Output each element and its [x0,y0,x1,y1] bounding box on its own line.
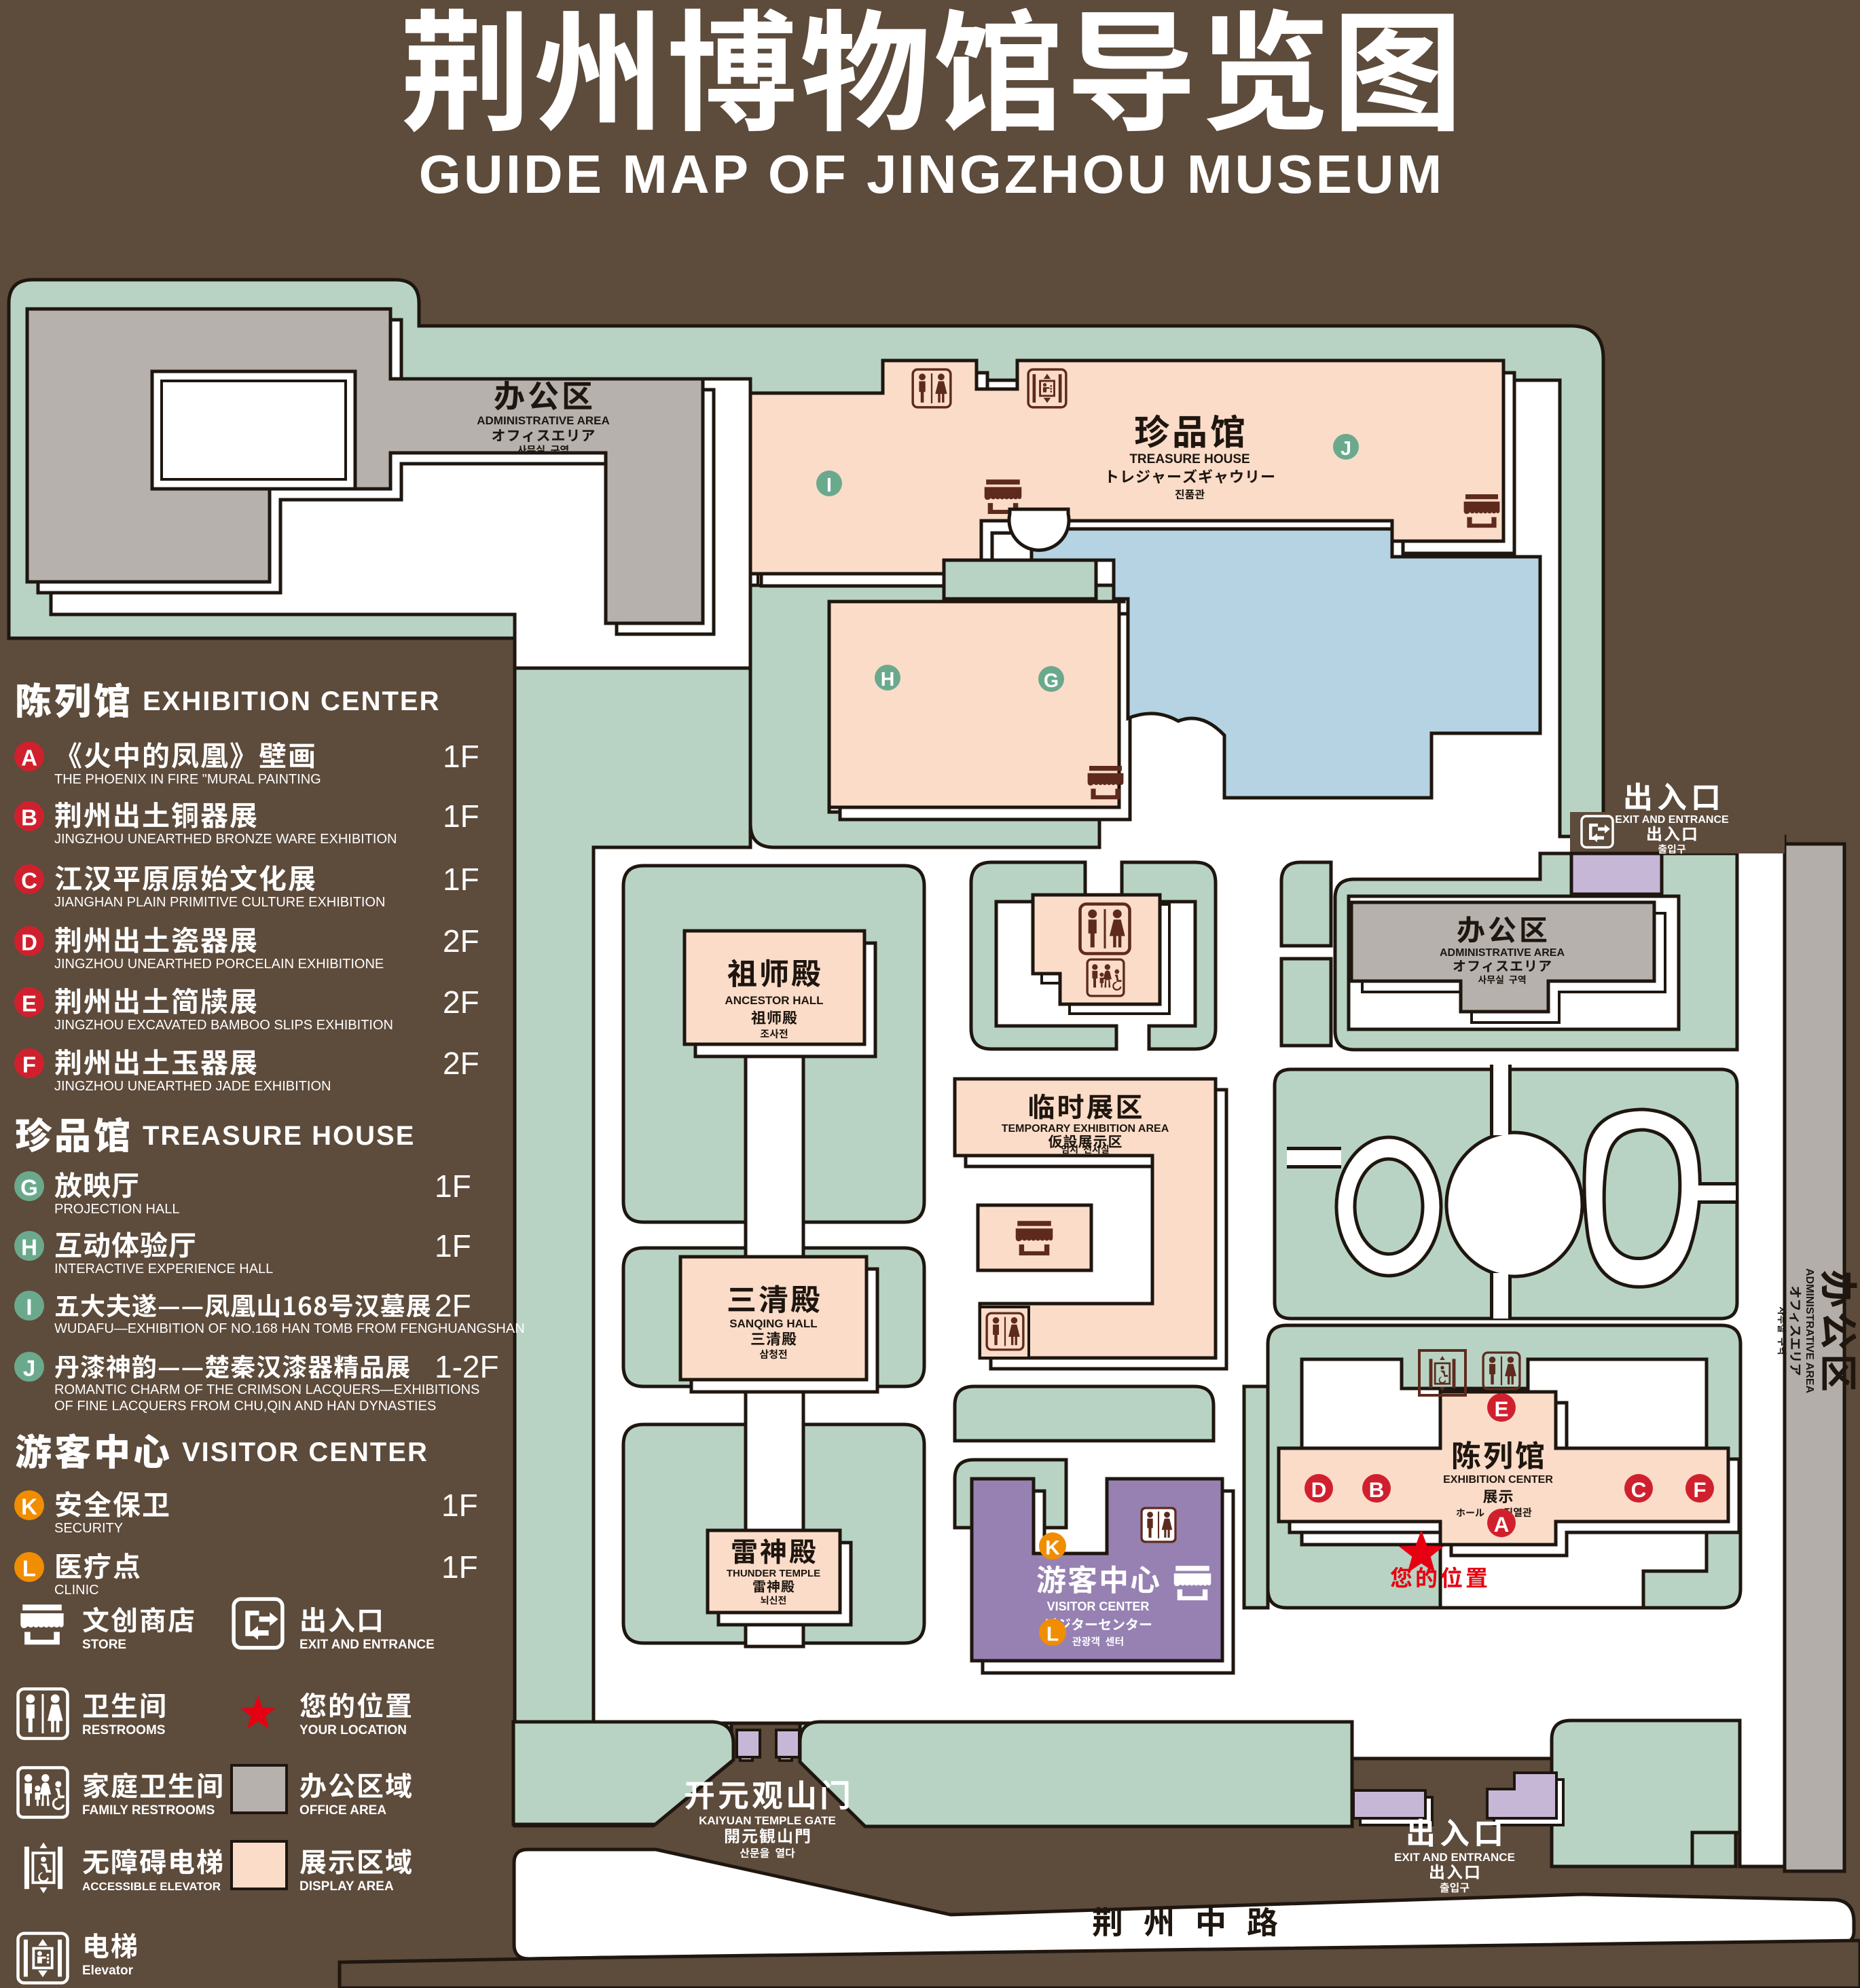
svg-text:C: C [21,868,37,894]
svg-text:Elevator: Elevator [82,1964,134,1978]
svg-text:OFFICE AREA: OFFICE AREA [299,1803,386,1818]
svg-text:YOUR LOCATION: YOUR LOCATION [299,1723,407,1737]
svg-text:JIANGHAN PLAIN PRIMITIVE CULTU: JIANGHAN PLAIN PRIMITIVE CULTURE EXHIBIT… [54,895,385,910]
svg-text:2F: 2F [443,984,479,1020]
svg-text:1F: 1F [441,1549,478,1585]
svg-text:H: H [881,669,895,691]
svg-text:SECURITY: SECURITY [54,1521,123,1536]
svg-text:EXHIBITION CENTER: EXHIBITION CENTER [1443,1474,1553,1486]
svg-text:SANQING HALL: SANQING HALL [729,1317,817,1330]
svg-text:KAIYUAN TEMPLE GATE: KAIYUAN TEMPLE GATE [699,1814,836,1827]
svg-text:EXIT AND ENTRANCE: EXIT AND ENTRANCE [1615,814,1729,826]
svg-text:ADMINISTRATIVE AREA: ADMINISTRATIVE AREA [1804,1268,1815,1393]
svg-text:RESTROOMS: RESTROOMS [82,1723,165,1737]
svg-text:L: L [22,1556,36,1581]
svg-text:I: I [26,1295,32,1320]
svg-text:THUNDER TEMPLE: THUNDER TEMPLE [727,1568,820,1579]
svg-text:J: J [23,1356,35,1381]
svg-text:ROMANTIC CHARM OF THE CRIMSON: ROMANTIC CHARM OF THE CRIMSON LACQUERS—E… [54,1382,479,1397]
svg-text:EXIT AND ENTRANCE: EXIT AND ENTRANCE [299,1638,435,1652]
svg-text:PROJECTION HALL: PROJECTION HALL [54,1202,179,1217]
svg-text:TREASURE HOUSE: TREASURE HOUSE [143,1121,415,1151]
svg-text:JINGZHOU UNEARTHED JADE EXHIBI: JINGZHOU UNEARTHED JADE EXHIBITION [54,1079,331,1094]
svg-text:ADMINISTRATIVE AREA: ADMINISTRATIVE AREA [1440,947,1565,959]
svg-text:A: A [1494,1512,1510,1536]
svg-text:EXHIBITION CENTER: EXHIBITION CENTER [143,686,440,716]
svg-text:F: F [22,1052,36,1078]
svg-text:B: B [1369,1477,1385,1502]
svg-text:G: G [1044,670,1059,692]
svg-text:B: B [21,805,37,830]
svg-text:1F: 1F [443,862,479,897]
svg-text:JINGZHOU EXCAVATED BAMBOO SLIP: JINGZHOU EXCAVATED BAMBOO SLIPS EXHIBITI… [54,1018,393,1033]
svg-text:FAMILY RESTROOMS: FAMILY RESTROOMS [82,1803,215,1818]
svg-text:JINGZHOU UNEARTHED BRONZE WARE: JINGZHOU UNEARTHED BRONZE WARE EXHIBITIO… [54,832,397,847]
svg-text:A: A [21,745,37,771]
svg-text:2F: 2F [435,1288,471,1323]
svg-text:2F: 2F [443,923,479,959]
svg-text:WUDAFU—EXHIBITION OF NO.168 HA: WUDAFU—EXHIBITION OF NO.168 HAN TOMB FRO… [54,1321,525,1336]
svg-text:1F: 1F [443,798,479,834]
svg-text:ANCESTOR HALL: ANCESTOR HALL [725,994,823,1007]
svg-text:2F: 2F [443,1046,479,1081]
svg-text:OF FINE LACQUERS FROM CHU,QIN: OF FINE LACQUERS FROM CHU,QIN AND HAN DY… [54,1399,436,1414]
svg-text:THE PHOENIX IN FIRE "MURAL PAI: THE PHOENIX IN FIRE "MURAL PAINTING [54,772,321,787]
svg-text:TREASURE HOUSE: TREASURE HOUSE [1129,452,1250,466]
svg-text:1-2F: 1-2F [435,1349,499,1384]
svg-text:F: F [1693,1477,1706,1502]
svg-text:1F: 1F [435,1228,471,1264]
svg-text:J: J [1341,438,1351,460]
svg-text:E: E [22,991,37,1016]
svg-text:1F: 1F [443,739,479,774]
svg-text:K: K [21,1494,37,1520]
svg-text:1F: 1F [441,1488,478,1523]
svg-text:1F: 1F [435,1168,471,1204]
svg-text:INTERACTIVE EXPERIENCE HALL: INTERACTIVE EXPERIENCE HALL [54,1262,273,1276]
svg-text:H: H [21,1235,37,1260]
svg-text:VISITOR CENTER: VISITOR CENTER [1047,1600,1150,1613]
svg-text:GUIDE MAP OF JINGZHOU MUSEUM: GUIDE MAP OF JINGZHOU MUSEUM [419,144,1445,204]
svg-text:ADMINISTRATIVE AREA: ADMINISTRATIVE AREA [477,414,610,427]
svg-text:TEMPORARY EXHIBITION AREA: TEMPORARY EXHIBITION AREA [1002,1123,1169,1135]
svg-text:K: K [1045,1536,1060,1559]
svg-text:DISPLAY AREA: DISPLAY AREA [299,1879,394,1894]
svg-text:VISITOR CENTER: VISITOR CENTER [182,1437,428,1467]
svg-text:ACCESSIBLE ELEVATOR: ACCESSIBLE ELEVATOR [82,1880,221,1893]
svg-text:D: D [21,930,37,955]
svg-text:EXIT AND ENTRANCE: EXIT AND ENTRANCE [1394,1851,1515,1864]
svg-text:L: L [1046,1623,1059,1645]
svg-text:STORE: STORE [82,1638,126,1652]
svg-text:C: C [1631,1477,1647,1502]
svg-text:I: I [826,475,832,496]
svg-text:E: E [1494,1397,1508,1421]
svg-text:G: G [20,1175,38,1200]
svg-text:CLINIC: CLINIC [54,1583,99,1598]
svg-text:D: D [1311,1477,1327,1502]
svg-text:JINGZHOU UNEARTHED PORCELAIN E: JINGZHOU UNEARTHED PORCELAIN EXHIBITIONE [54,957,384,972]
